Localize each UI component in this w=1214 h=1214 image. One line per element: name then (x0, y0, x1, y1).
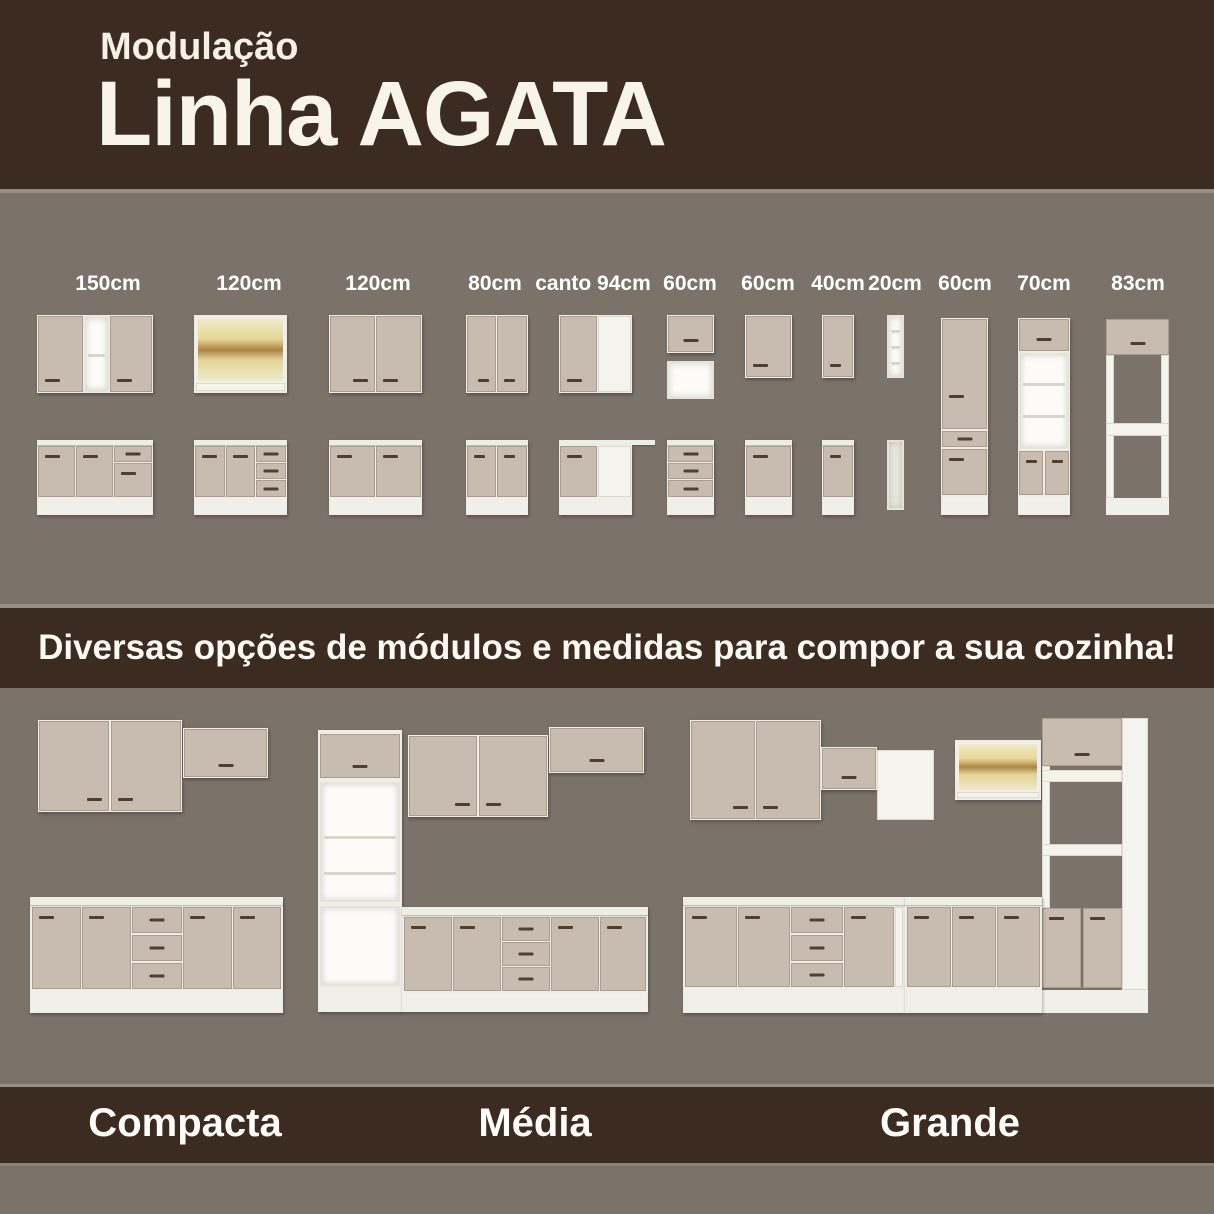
drawer (942, 431, 987, 447)
module-size-label: 70cm (1017, 272, 1071, 296)
cabinet-door (453, 917, 501, 991)
compacta-flip-cabinet (183, 728, 268, 778)
module-20-open-shelf (887, 315, 904, 378)
cabinet-door (404, 917, 452, 991)
cabinet-door (746, 446, 791, 497)
shelf (891, 362, 900, 365)
cabinet-door (844, 907, 894, 987)
cabinet-door (600, 917, 646, 991)
plinth (685, 989, 903, 1011)
module-size-label: 83cm (1111, 272, 1165, 296)
shelf (1042, 844, 1122, 856)
shelf (324, 836, 396, 839)
drawer (132, 935, 182, 961)
cabinet-door (38, 446, 75, 497)
plinth (195, 497, 286, 514)
drawer (256, 463, 286, 479)
drawer (791, 963, 843, 987)
shelf (1023, 383, 1065, 386)
drawer (502, 967, 550, 991)
compacta-wall-cabinet (38, 720, 182, 812)
cabinet-door (560, 316, 597, 392)
drawer (668, 463, 713, 479)
plinth (1019, 497, 1069, 514)
tower-side-panel (1122, 718, 1148, 990)
countertop (194, 440, 287, 445)
cabinet-door (942, 319, 987, 429)
countertop (329, 440, 422, 445)
flip-door (1106, 319, 1169, 355)
module-size-label: 120cm (345, 272, 410, 296)
module-80-base-cabinet (466, 440, 528, 515)
cabinet-door (330, 316, 375, 392)
cabinet-door (76, 446, 113, 497)
drawer (502, 917, 550, 941)
tagline-band: Diversas opções de módulos e medidas par… (0, 604, 1214, 688)
media-tall-tower (318, 730, 402, 1012)
countertop (822, 440, 854, 445)
cabinet-door (1045, 451, 1069, 495)
module-60-drawer-base (667, 440, 714, 515)
plinth (907, 989, 1040, 1011)
module-size-label: 80cm (468, 272, 522, 296)
cabinet-door (376, 316, 421, 392)
media-wall-cabinet (408, 735, 548, 817)
open-shelf (1019, 353, 1069, 449)
cabinet-door (467, 316, 496, 392)
cabinet-door (497, 446, 527, 497)
module-20-base-niche (887, 440, 904, 510)
module-120-wall-cabinet (329, 315, 422, 393)
cabinet-door (497, 316, 527, 392)
glass-door (957, 742, 1039, 792)
grande-base-run-left (683, 897, 905, 1013)
shelf (88, 354, 105, 357)
plinth (560, 497, 631, 514)
module-60-wall-cabinet (745, 315, 792, 378)
countertop (466, 440, 528, 445)
cabinet-door (479, 736, 547, 816)
cabinet-door (551, 917, 599, 991)
cabinet-door (560, 446, 597, 497)
cabinet-door (691, 721, 755, 819)
module-size-label: 60cm (663, 272, 717, 296)
shelf (1042, 770, 1122, 782)
kitchen-name-compacta: Compacta (88, 1101, 281, 1146)
flip-door (1042, 718, 1122, 766)
kitchen-name-grande: Grande (880, 1101, 1020, 1146)
module-size-label: 40cm (811, 272, 865, 296)
cabinet-door (110, 316, 152, 392)
drawer (668, 446, 713, 462)
module-size-label: 60cm (741, 272, 795, 296)
countertop (30, 897, 283, 905)
grande-glass-cabinet (955, 740, 1041, 800)
microwave-niche (667, 361, 714, 399)
cabinet-base-strip (196, 383, 285, 391)
module-120-glass-wall-cabinet (194, 315, 287, 393)
cabinet-door (942, 449, 987, 495)
grande-corner-panel (877, 750, 934, 820)
module-corner-wall-cabinet (559, 315, 632, 393)
module-size-label: canto 94cm (535, 272, 651, 296)
frame-rail (1042, 766, 1050, 908)
cabinet-door (32, 907, 81, 989)
cabinet-door (114, 463, 152, 497)
cabinet-door (823, 446, 853, 497)
cabinet-base-strip (957, 792, 1039, 798)
shelf (1023, 415, 1065, 418)
plinth (320, 988, 400, 1010)
shelf (891, 346, 900, 349)
cabinet-door (111, 721, 181, 811)
cabinet-door (330, 446, 375, 497)
cabinet-door (226, 446, 255, 497)
module-80-wall-cabinet (466, 315, 528, 393)
cabinet-door (39, 721, 109, 811)
cabinet-door (1019, 451, 1043, 495)
corner-side-panel (598, 446, 631, 497)
module-150-wall-cabinet (37, 315, 153, 393)
media-flip-cabinet (549, 727, 644, 773)
cabinet-door (38, 316, 83, 392)
countertop (745, 440, 792, 445)
module-70-oven-tower (1018, 318, 1070, 515)
module-60-flip-cabinet (667, 315, 714, 353)
catalog-poster: Modulação Linha AGATA 150cm 120cm 120cm … (0, 0, 1214, 1214)
plinth (38, 497, 152, 514)
drawer (114, 446, 152, 462)
plinth (746, 497, 791, 514)
countertop (402, 907, 648, 915)
module-60-tall-pantry (941, 318, 988, 515)
plinth (467, 497, 527, 514)
plinth (823, 497, 853, 514)
cabinet-door (233, 907, 281, 989)
plinth (668, 497, 713, 514)
cabinet-door (738, 907, 790, 987)
open-shelf (320, 782, 400, 902)
module-40-base-cabinet (822, 440, 854, 515)
drawer (791, 935, 843, 961)
media-base-run (402, 907, 648, 1012)
module-120-base-cabinet (194, 440, 287, 515)
cabinet-door (409, 736, 477, 816)
module-size-label: 60cm (938, 272, 992, 296)
grande-base-run-right (905, 897, 1042, 1013)
shelf (891, 330, 900, 333)
drawer (132, 907, 182, 933)
plinth (1042, 990, 1148, 1013)
flip-door (320, 734, 400, 778)
tagline-text: Diversas opções de módulos e medidas par… (0, 628, 1214, 668)
compacta-base-run (30, 897, 283, 1013)
drawer (668, 480, 713, 497)
flip-door (822, 748, 876, 789)
cabinet-door (376, 446, 421, 497)
cabinet-door (823, 316, 853, 377)
grande-step-cabinet (821, 747, 877, 790)
grande-wall-cabinet (690, 720, 821, 820)
countertop (667, 440, 714, 445)
flip-door (550, 728, 643, 772)
plinth (942, 497, 987, 514)
module-corner-base-cabinet (559, 445, 632, 515)
cabinet-door (756, 721, 820, 819)
drawer (791, 907, 843, 933)
cabinet-door (907, 907, 951, 987)
glass-door (196, 317, 285, 383)
cabinet-door (195, 446, 225, 497)
module-60-base-cabinet (745, 440, 792, 515)
header-band: Modulação Linha AGATA (0, 0, 1214, 193)
module-150-base-cabinet (37, 440, 153, 515)
cabinet-door (1083, 908, 1122, 988)
cabinet-door (82, 907, 131, 989)
plinth (330, 497, 421, 514)
module-size-label: 150cm (75, 272, 140, 296)
frame-crossbar (1106, 423, 1169, 436)
module-120-base-cabinet (329, 440, 422, 515)
flip-door (1019, 319, 1069, 351)
grande-tall-tower (1042, 718, 1148, 1013)
module-size-label: 20cm (868, 272, 922, 296)
corner-filler (895, 907, 903, 987)
plinth (32, 991, 281, 1011)
cabinet-door (685, 907, 737, 987)
plinth (404, 993, 646, 1012)
kitchen-names-band: Compacta Média Grande (0, 1084, 1214, 1166)
cabinet-door (746, 316, 791, 377)
drawer (502, 942, 550, 966)
open-shelf (84, 316, 109, 392)
open-shelf (320, 906, 400, 986)
drawer (256, 446, 286, 462)
cabinet-door (467, 446, 496, 497)
cabinet-door (1042, 908, 1081, 988)
kitchen-name-media: Média (478, 1101, 591, 1146)
cabinet-door (183, 907, 232, 989)
countertop (905, 897, 1042, 905)
corner-side-panel (598, 316, 631, 392)
plinth (1106, 498, 1169, 515)
drawer (132, 963, 182, 989)
drawer (256, 480, 286, 497)
countertop (683, 897, 905, 905)
module-83-fridge-surround (1105, 318, 1170, 515)
module-size-label: 120cm (216, 272, 281, 296)
page-title: Linha AGATA (96, 62, 666, 167)
flip-door (184, 729, 267, 777)
cabinet-door (952, 907, 996, 987)
shelf (324, 872, 396, 875)
flip-door (668, 316, 713, 352)
cabinet-door (997, 907, 1040, 987)
countertop (37, 440, 153, 445)
module-40-wall-cabinet (822, 315, 854, 378)
